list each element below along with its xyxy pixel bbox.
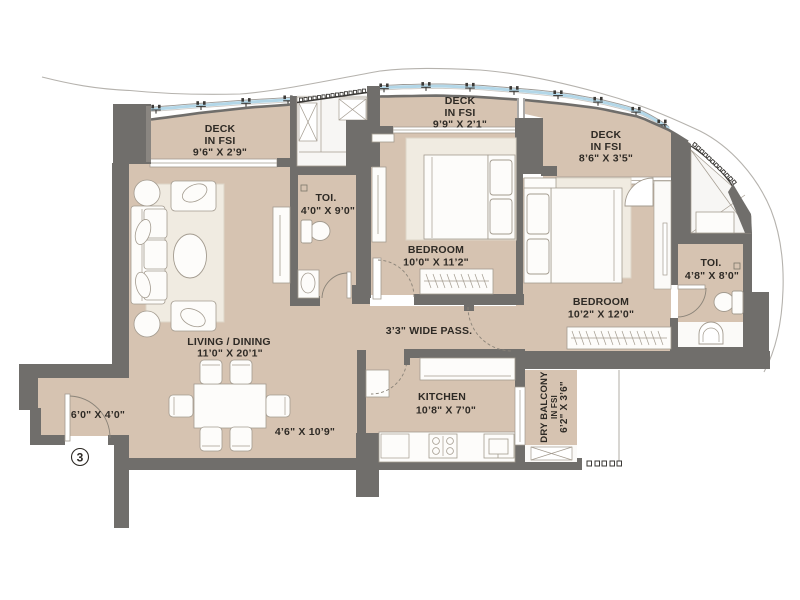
svg-text:BEDROOM: BEDROOM xyxy=(573,296,629,308)
svg-text:KITCHEN: KITCHEN xyxy=(418,391,466,403)
svg-text:IN FSI: IN FSI xyxy=(550,395,559,419)
svg-text:IN FSI: IN FSI xyxy=(445,107,476,119)
svg-text:8’6" X 3’5": 8’6" X 3’5" xyxy=(579,153,633,165)
svg-text:9’9" X 2’1": 9’9" X 2’1" xyxy=(433,119,487,131)
svg-text:4’6" X 10’9": 4’6" X 10’9" xyxy=(275,426,335,438)
svg-text:DECK: DECK xyxy=(591,129,622,141)
svg-text:6’2" X 3’6": 6’2" X 3’6" xyxy=(559,381,570,433)
svg-text:10’8" X 7’0": 10’8" X 7’0" xyxy=(416,405,476,417)
svg-text:4’8" X 8’0": 4’8" X 8’0" xyxy=(685,270,739,282)
svg-text:DECK: DECK xyxy=(445,95,476,107)
svg-text:BEDROOM: BEDROOM xyxy=(408,244,464,256)
svg-text:3’3" WIDE PASS.: 3’3" WIDE PASS. xyxy=(386,325,473,337)
svg-text:LIVING / DINING: LIVING / DINING xyxy=(187,336,271,348)
svg-text:4’0" X 9’0": 4’0" X 9’0" xyxy=(301,205,355,217)
svg-text:DECK: DECK xyxy=(205,123,236,135)
svg-text:IN FSI: IN FSI xyxy=(205,135,236,147)
svg-text:TOI.: TOI. xyxy=(315,192,336,204)
svg-text:DRY BALCONY: DRY BALCONY xyxy=(539,371,550,443)
svg-text:IN FSI: IN FSI xyxy=(591,141,622,153)
svg-text:10’0" X 11’2": 10’0" X 11’2" xyxy=(403,257,469,269)
svg-text:10’2" X 12’0": 10’2" X 12’0" xyxy=(568,309,634,321)
svg-text:6’0" X 4’0": 6’0" X 4’0" xyxy=(71,409,125,421)
svg-text:11’0" X 20’1": 11’0" X 20’1" xyxy=(197,348,263,360)
svg-text:9’6" X 2’9": 9’6" X 2’9" xyxy=(193,147,247,159)
svg-text:TOI.: TOI. xyxy=(700,257,721,269)
svg-text:3: 3 xyxy=(77,451,84,465)
